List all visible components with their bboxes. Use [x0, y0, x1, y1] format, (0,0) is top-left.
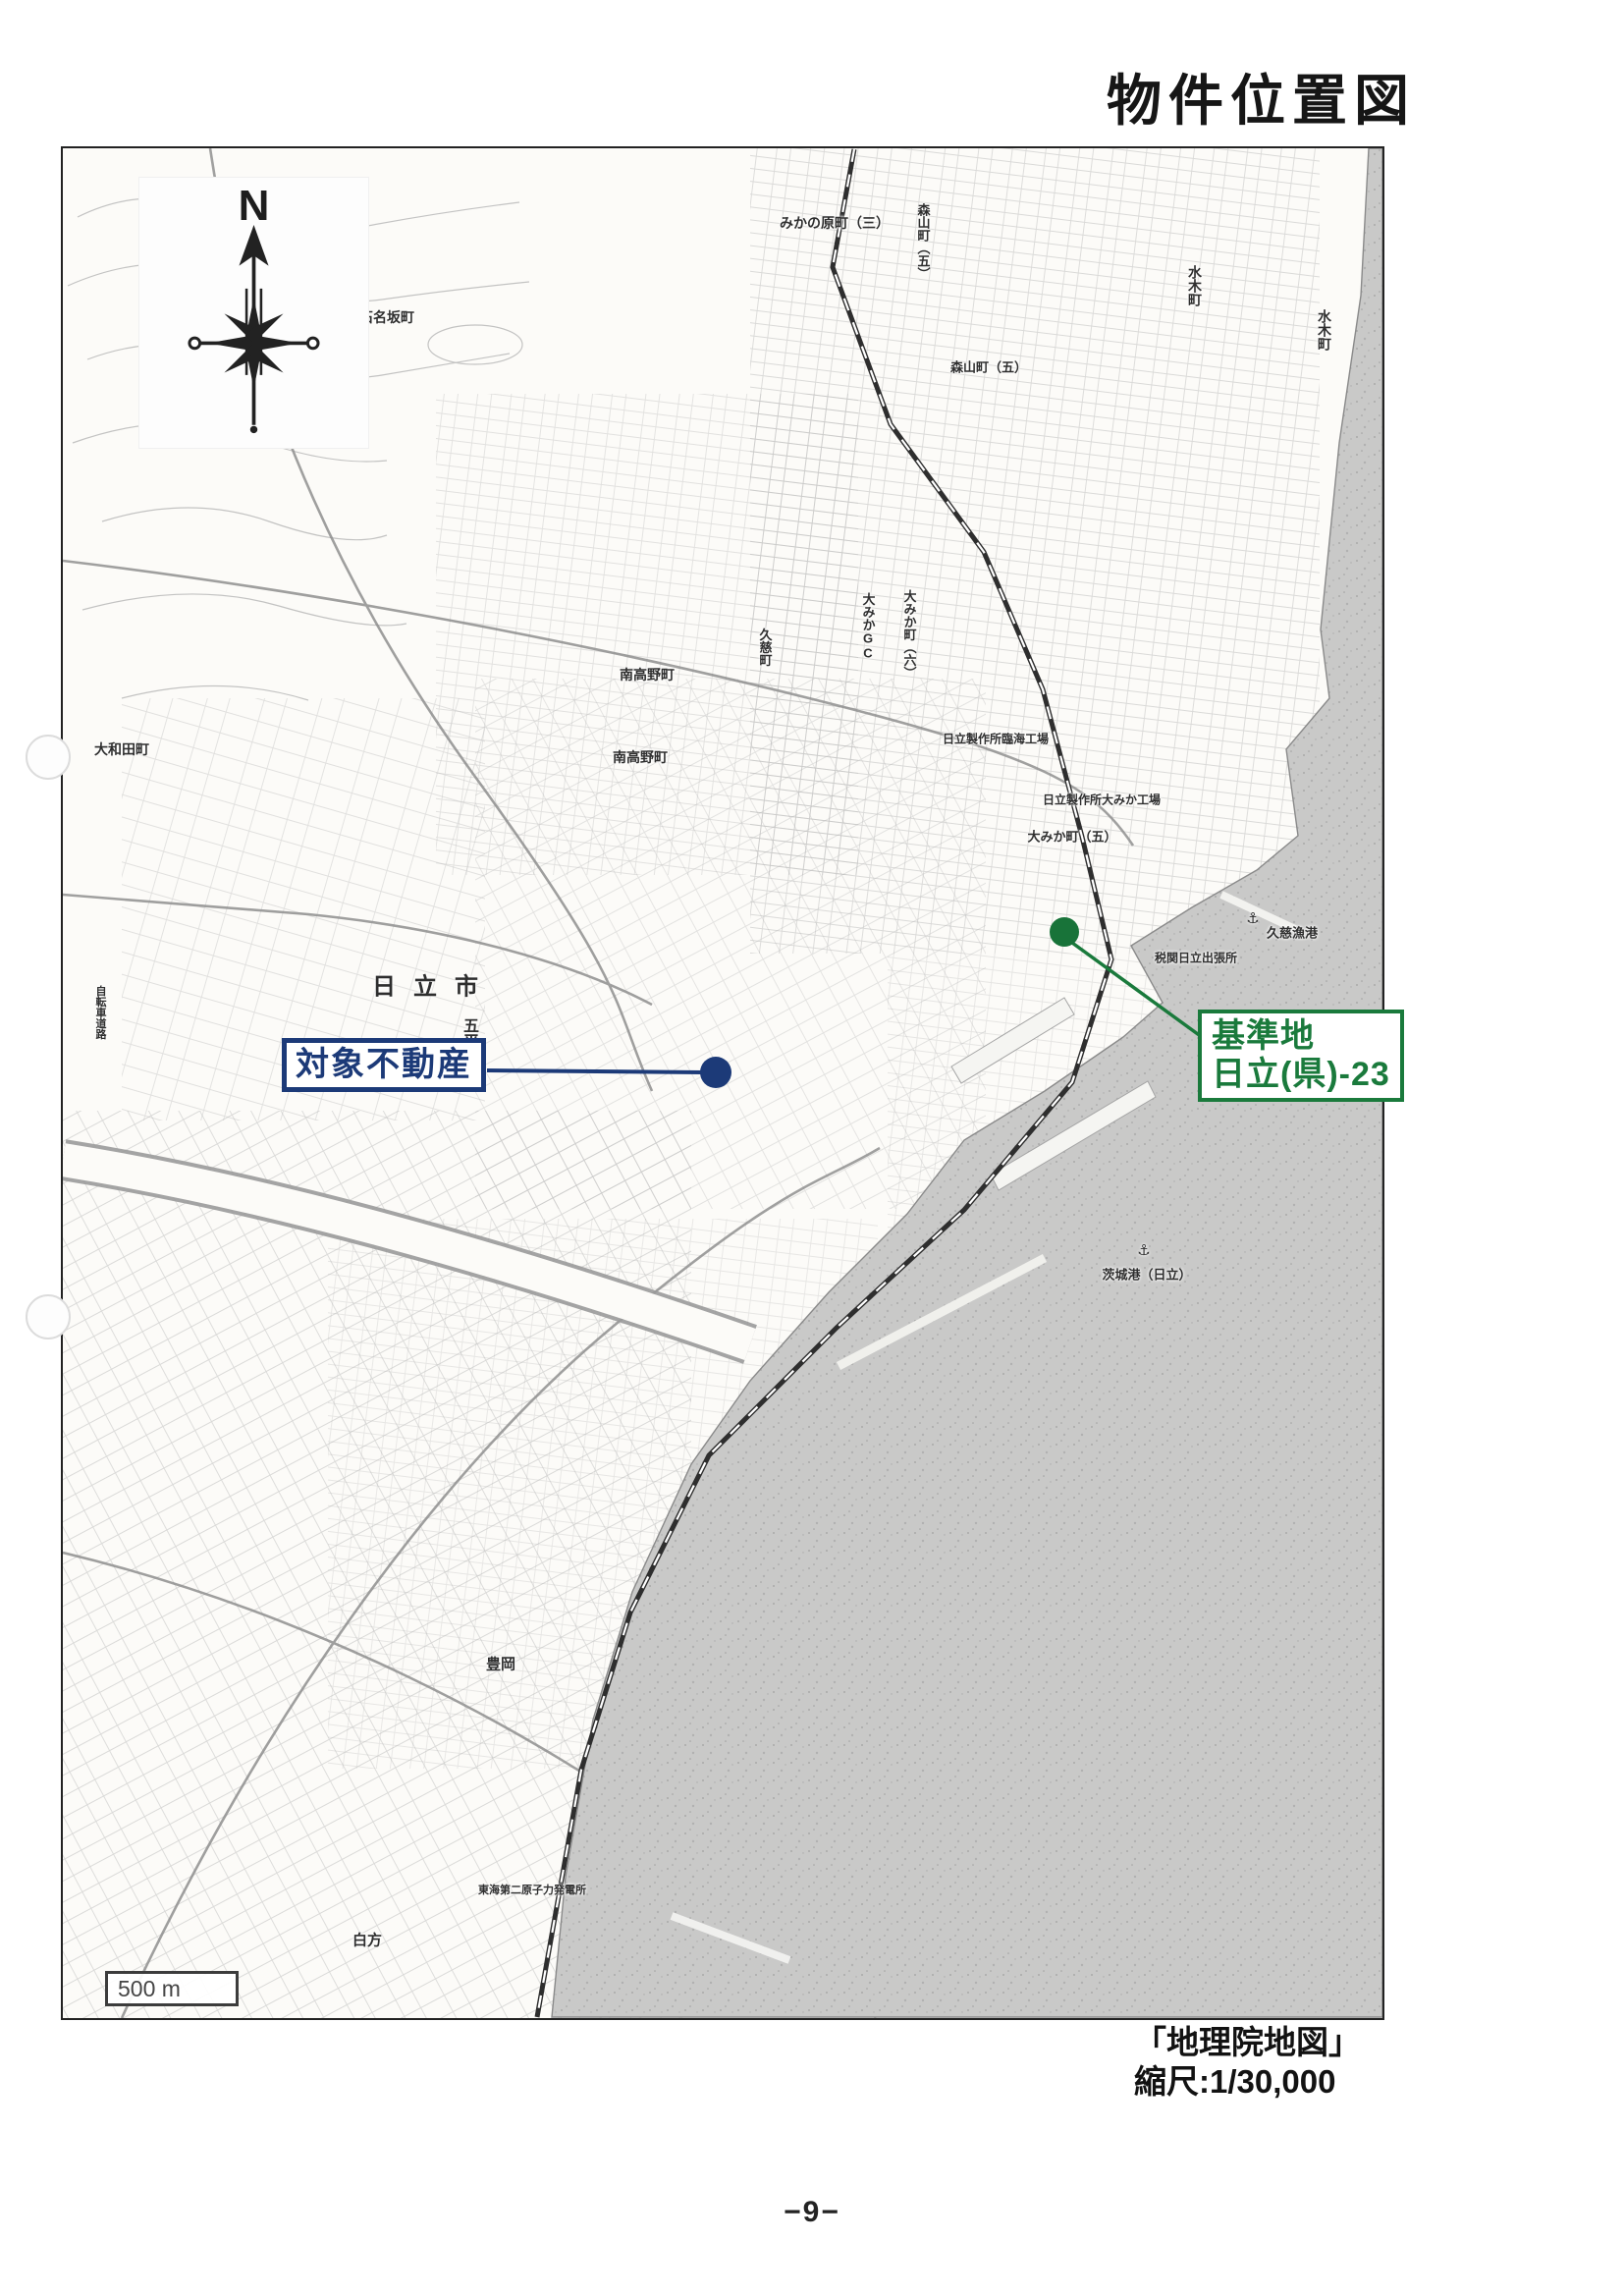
north-label: N: [239, 182, 270, 231]
location-map: 日立市五平水木町水木町みかの原町（三）森山町（五）森山町（五）石名坂町大和田町大…: [61, 146, 1384, 2020]
compass-box: N: [139, 178, 368, 448]
page-number: −9−: [0, 2196, 1624, 2229]
reference-site-label-line2: 日立(県)-23: [1212, 1056, 1390, 1094]
subject-property-label: 対象不動産: [296, 1046, 472, 1083]
subject-property-dot: [700, 1057, 731, 1088]
map-scale-ratio-label: 縮尺:1/30,000: [1134, 2062, 1361, 2102]
reference-site-callout: 基準地 日立(県)-23: [1198, 1010, 1404, 1102]
reference-site-label-line1: 基準地: [1212, 1017, 1390, 1056]
map-scale-label: 500 m: [118, 1976, 181, 2001]
reference-site-dot: [1050, 917, 1079, 947]
subject-leader-line: [487, 1070, 703, 1072]
map-scale-box: 500 m: [105, 1971, 239, 2006]
hole-punch: [26, 1294, 71, 1339]
page-title: 物件位置図: [1107, 57, 1416, 137]
map-source-label: 「地理院地図」: [1134, 2023, 1361, 2062]
hole-punch: [26, 735, 71, 780]
document-page: 物件位置図: [0, 0, 1624, 2296]
map-attribution: 「地理院地図」 縮尺:1/30,000: [1134, 2023, 1361, 2103]
compass-rose-icon: [139, 225, 368, 441]
subject-property-callout: 対象不動産: [282, 1038, 486, 1092]
